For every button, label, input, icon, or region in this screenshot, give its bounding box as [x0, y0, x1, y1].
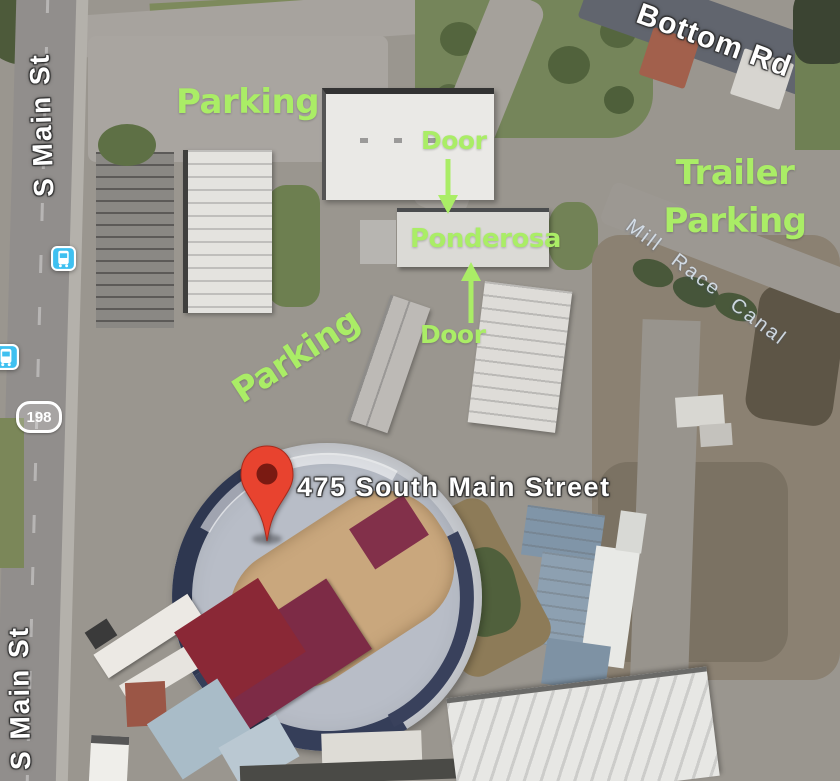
annotation-door-upper: Door [421, 126, 486, 155]
tree-cluster [548, 46, 590, 84]
location-pin-icon[interactable] [239, 444, 295, 544]
annotation-trailer-line1: Trailer [655, 150, 815, 198]
arrow-down-icon [437, 157, 459, 215]
bus-stop-icon[interactable] [51, 246, 76, 271]
building-big-bottom-right [446, 666, 719, 781]
building-small-gray [360, 220, 396, 264]
truck-white [89, 735, 130, 781]
satellite-map[interactable]: S Main St S Main St Bottom Rd Mill Race … [0, 0, 840, 781]
bus-stop-icon[interactable] [0, 344, 19, 370]
route-198-badge: 198 [16, 401, 62, 433]
building-tall-white [183, 150, 272, 313]
annotation-parking-top: Parking [176, 82, 319, 122]
grass-patch [0, 418, 24, 568]
annotation-parking-diagonal: Parking [225, 300, 367, 411]
address-label: 475 South Main Street [297, 472, 611, 503]
storage-trailer-white [615, 510, 646, 553]
tree-cluster [793, 0, 840, 64]
tree-cluster [604, 86, 634, 114]
arrow-up-icon [460, 261, 482, 325]
road-label-s-main-st-top: S Main St [23, 52, 60, 197]
building-small-gray [699, 423, 732, 447]
building-small-white [675, 394, 725, 427]
annotation-trailer-line2: Parking [655, 198, 815, 246]
building-ribbed-white [468, 281, 573, 433]
annotation-trailer-parking: Trailer Parking [655, 150, 815, 245]
parking-lot-striped [96, 152, 174, 328]
tree-cluster [268, 185, 320, 307]
building-long-diagonal [348, 295, 431, 433]
road-label-s-main-st-bottom: S Main St [3, 626, 38, 771]
annotation-ponderosa: Ponderosa [410, 224, 561, 254]
annotation-door-lower: Door [420, 320, 485, 349]
tree-cluster [98, 124, 156, 166]
